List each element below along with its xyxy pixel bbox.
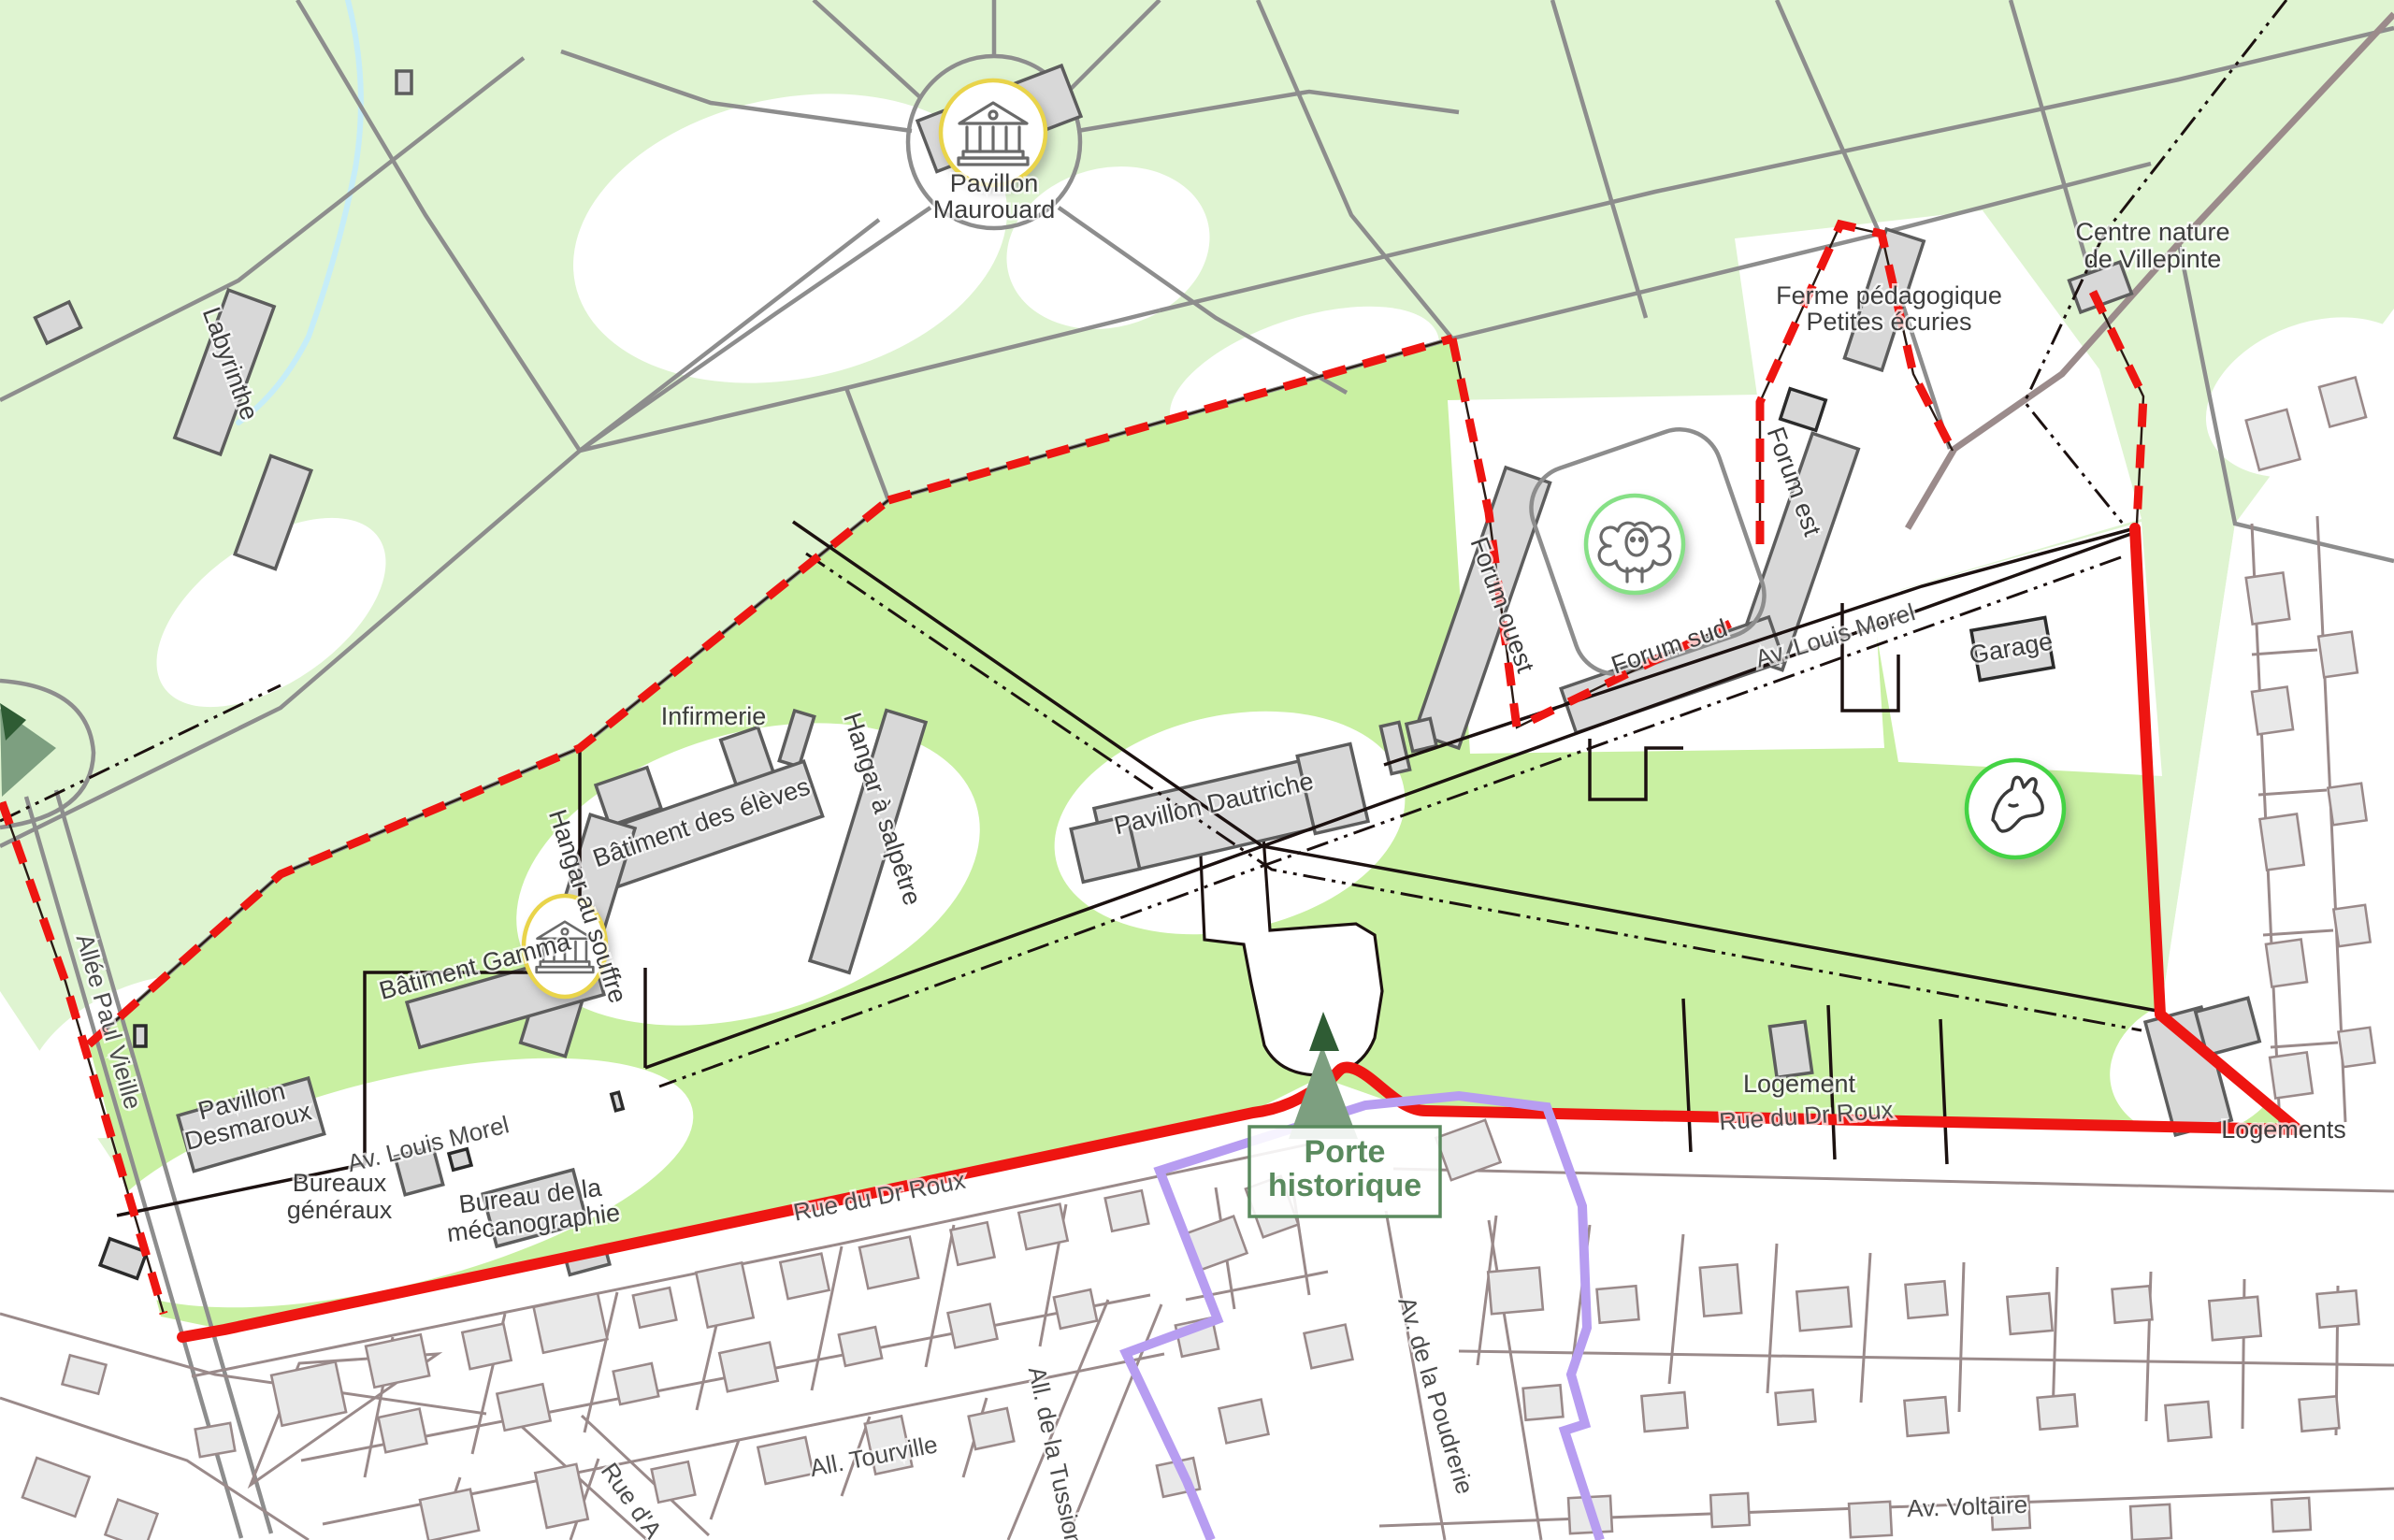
label-av-voltaire: Av. Voltaire xyxy=(1907,1490,2028,1522)
label-infirmerie: Infirmerie xyxy=(661,702,767,730)
label-centre-nature: Centre naturede Villepinte xyxy=(2075,218,2229,273)
label-logements: Logements xyxy=(2221,1115,2346,1144)
building xyxy=(1406,718,1436,751)
horse-marker[interactable] xyxy=(1967,760,2064,857)
label-ferme-pedagogique: Ferme pédagogiquePetites écuries xyxy=(1776,281,2002,336)
building xyxy=(135,1026,146,1046)
label-bureaux-generaux: Bureauxgénéraux xyxy=(287,1169,393,1224)
sheep-marker[interactable] xyxy=(1586,496,1683,593)
map-canvas[interactable]: PavillonMaurouard Labyrinthe Centre natu… xyxy=(0,0,2394,1540)
marker-ring xyxy=(1586,496,1683,593)
label-logement: Logement xyxy=(1743,1070,1856,1098)
building xyxy=(397,71,411,94)
porte-historique-callout[interactable]: Portehistorique xyxy=(1249,1127,1440,1216)
site-map: PavillonMaurouard Labyrinthe Centre natu… xyxy=(0,0,2394,1540)
label-pavillon-maurouard: PavillonMaurouard xyxy=(933,169,1056,223)
